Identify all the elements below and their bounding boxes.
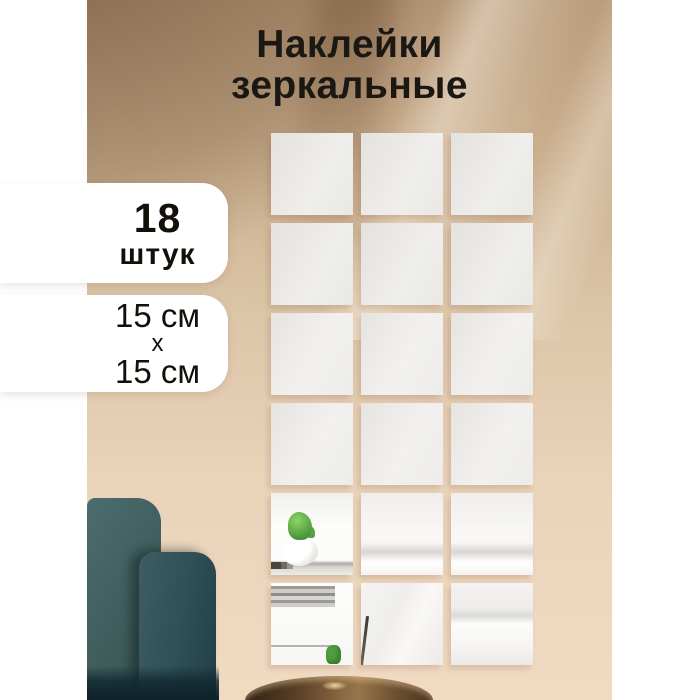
mirror-tile-r4c1 [271,403,353,485]
mirror-tile-r4c3 [451,403,533,485]
armchair-seat-shadow [87,666,219,700]
mirror-tile-r6c1 [271,583,353,665]
mirror-grid [271,133,533,665]
product-title-line2: зеркальные [87,65,612,106]
mirror-tile-r5c3 [451,493,533,575]
count-badge-unit: штук [119,239,195,270]
mirror-tile-r2c3 [451,223,533,305]
mirror-tile-r5c2 [361,493,443,575]
count-badge-number: 18 [134,197,182,239]
mirror-tile-r6c3 [451,583,533,665]
mirror-tile-r1c3 [451,133,533,215]
mirror-tile-r1c1 [271,133,353,215]
mirror-tile-r2c2 [361,223,443,305]
side-table-knob-highlight [323,681,347,690]
mirror-tile-r4c2 [361,403,443,485]
size-badge-width: 15 см [115,299,200,332]
size-badge: 15 см х 15 см [0,295,228,392]
mirror-tile-r3c2 [361,313,443,395]
size-badge-height: 15 см [115,355,200,388]
mirror-tile-r2c1 [271,223,353,305]
mirror-tile-r3c3 [451,313,533,395]
size-badge-separator: х [152,332,164,355]
mirror-tile-r5c1 [271,493,353,575]
mirror-tile-r1c2 [361,133,443,215]
count-badge: 18 штук [0,183,228,283]
mirror-tile-r3c1 [271,313,353,395]
mirror-tile-r6c2 [361,583,443,665]
product-title: Наклейки зеркальные [87,24,612,106]
product-image-canvas: { "title": {"line1": "Наклейки", "line2"… [0,0,700,700]
product-title-line1: Наклейки [87,24,612,65]
